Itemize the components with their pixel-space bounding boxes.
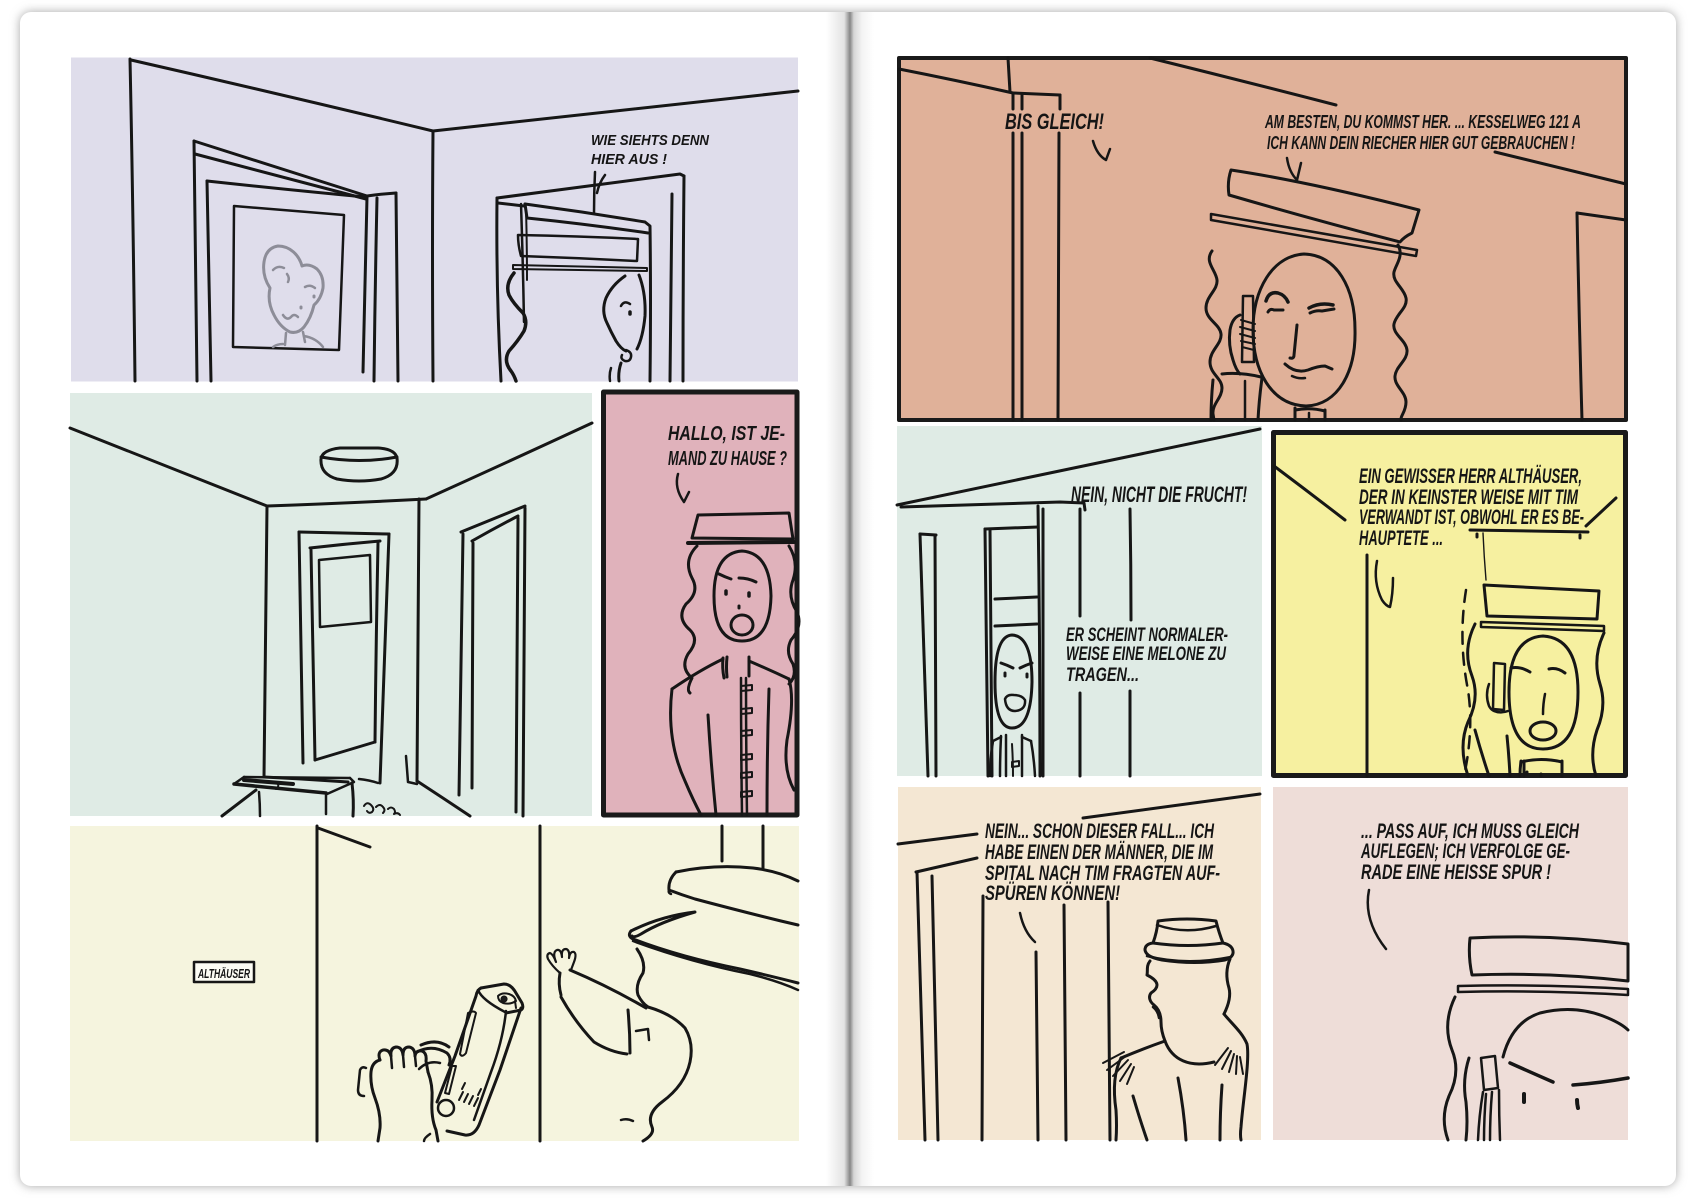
svg-text:HALLO, IST JE-: HALLO, IST JE-: [668, 422, 785, 445]
svg-text:WIE SIEHTS DENN: WIE SIEHTS DENN: [591, 132, 710, 149]
svg-text:SPÜREN KÖNNEN!: SPÜREN KÖNNEN!: [985, 880, 1120, 905]
svg-text:BIS GLEICH!: BIS GLEICH!: [1005, 109, 1104, 134]
svg-text:AM BESTEN, DU KOMMST HER. ...: AM BESTEN, DU KOMMST HER. ... KESSELWEG …: [1264, 112, 1581, 132]
svg-text:NEIN, NICHT DIE FRUCHT!: NEIN, NICHT DIE FRUCHT!: [1071, 482, 1247, 507]
svg-text:RADE EINE HEISSE SPUR !: RADE EINE HEISSE SPUR !: [1361, 860, 1551, 884]
svg-text:HAUPTETE ...: HAUPTETE ...: [1359, 526, 1443, 550]
svg-text:ICH KANN DEIN RIECHER HIER GUT: ICH KANN DEIN RIECHER HIER GUT GEBRAUCHE…: [1267, 133, 1575, 153]
svg-text:TRAGEN...: TRAGEN...: [1066, 665, 1139, 686]
svg-text:MAND ZU HAUSE ?: MAND ZU HAUSE ?: [668, 447, 787, 470]
svg-text:WEISE EINE MELONE ZU: WEISE EINE MELONE ZU: [1066, 644, 1227, 665]
svg-text:ER SCHEINT NORMALER-: ER SCHEINT NORMALER-: [1066, 625, 1228, 646]
svg-text:ALTHÄUSER: ALTHÄUSER: [197, 966, 250, 981]
svg-text:HIER AUS !: HIER AUS !: [591, 151, 667, 168]
